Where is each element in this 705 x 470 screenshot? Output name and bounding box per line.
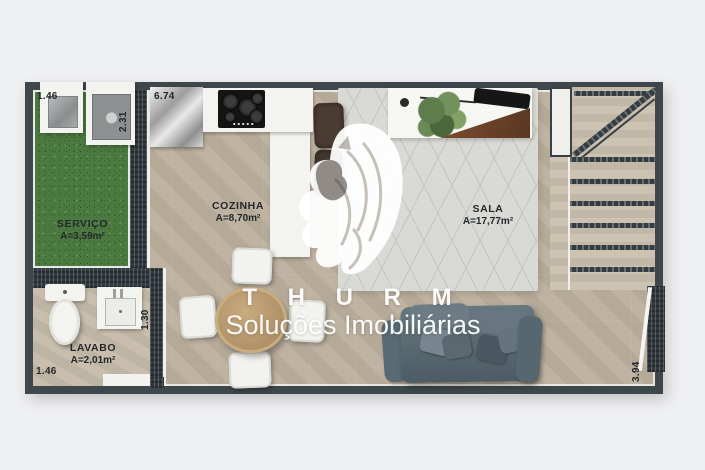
sink-drain [119, 310, 122, 313]
measurement-service-width: 1.46 [37, 91, 58, 102]
stair-tread [570, 179, 655, 184]
faucet [120, 289, 123, 298]
floor-plan-interior: 1.46 2.31 SERVIÇO A=3,59m² [33, 90, 655, 386]
lavabo-right-wall [150, 268, 163, 386]
dining-chair [228, 351, 271, 388]
tv-soundbar [473, 88, 530, 110]
toilet-flush-button [63, 290, 67, 294]
floor-plan: 1.46 2.31 SERVIÇO A=3,59m² [25, 82, 663, 394]
brand-name: T H U R M [183, 284, 523, 312]
measurement-kitchen-width: 6.74 [154, 91, 175, 102]
entry-door-jamb [150, 377, 164, 388]
plant [416, 88, 468, 144]
stair-tread [570, 223, 655, 228]
floor-plan-image: 1.46 2.31 SERVIÇO A=3,59m² [0, 0, 705, 470]
stair-landing [550, 87, 572, 157]
service-room-label: SERVIÇO A=3,59m² [35, 218, 130, 244]
laundry-tank [40, 82, 83, 133]
bathroom-sink [97, 287, 142, 329]
service-room-area: A=3,59m² [35, 231, 130, 244]
burner [251, 92, 264, 105]
stair-stringer [572, 87, 658, 157]
lavabo-room-area: A=2,01m² [43, 355, 143, 368]
measurement-living-depth: 3.94 [631, 338, 642, 382]
cooktop [218, 90, 265, 128]
toilet [45, 284, 85, 348]
stair-tread [570, 267, 655, 272]
staircase [550, 87, 655, 290]
measurement-service-depth: 2.31 [118, 86, 129, 132]
cooktop-knobs [232, 122, 254, 126]
stair-tread [570, 201, 655, 206]
living-room-name: SALA [428, 203, 548, 216]
toilet-bowl [49, 299, 80, 345]
kitchen-room-label: COZINHA A=8,70m² [183, 200, 293, 226]
wall-lining [163, 268, 166, 386]
kitchen-room-area: A=8,70m² [183, 213, 293, 226]
lavabo-room-name: LAVABO [43, 342, 143, 355]
brand-tagline: Soluções Imobiliárias [173, 310, 533, 341]
dining-chair [231, 247, 272, 284]
living-room-area: A=17,77m² [428, 216, 548, 229]
stair-tread [570, 157, 655, 162]
sink-basin [105, 298, 136, 326]
faucet [113, 289, 116, 298]
service-room-name: SERVIÇO [35, 218, 130, 231]
living-room-label: SALA A=17,77m² [428, 203, 548, 229]
decor-object [400, 98, 409, 107]
entry-door [103, 374, 150, 386]
measurement-lavabo-width: 1.46 [36, 366, 57, 377]
kitchen-room-name: COZINHA [183, 200, 293, 213]
lion-head-watermark-icon [288, 118, 416, 283]
stair-stringer [576, 98, 655, 162]
burner [222, 93, 239, 110]
stair-tread [570, 245, 655, 250]
lavabo-room-label: LAVABO A=2,01m² [43, 342, 143, 368]
measurement-lavabo-depth: 1.30 [140, 288, 151, 330]
